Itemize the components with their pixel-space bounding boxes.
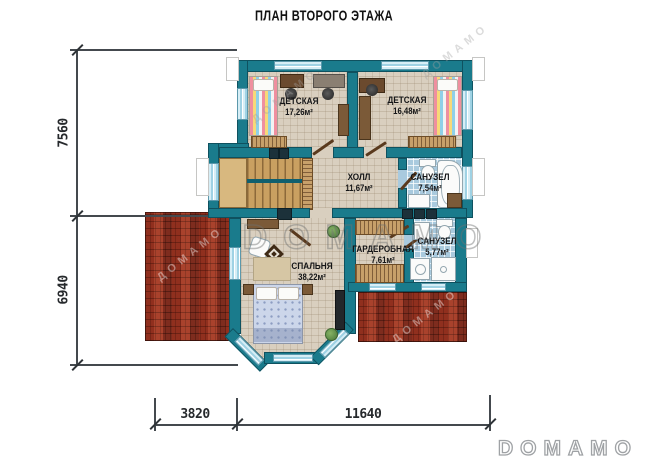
pilaster-top-left: [226, 57, 239, 81]
brand-logo: DOMAMO: [498, 437, 638, 461]
room-name: ХОЛЛ: [345, 172, 372, 183]
dimension-line-left: [76, 50, 78, 366]
room-area: 16,48м²: [388, 106, 427, 117]
dimension-value-6940: 6940: [57, 275, 72, 304]
room-area: 11,67м²: [345, 183, 372, 194]
window-bay-bottom: [273, 354, 313, 362]
window-right-kids2: [462, 90, 473, 130]
nightstand-right: [302, 284, 313, 295]
dimension-value-7560: 7560: [57, 118, 72, 147]
wall-bath1-north: [386, 147, 462, 158]
pillow: [256, 287, 277, 300]
room-name: САНУЗЕЛ: [411, 172, 450, 183]
washer-door: [415, 264, 426, 275]
sink-bath1: [408, 194, 430, 208]
room-label-bedroom: СПАЛЬНЯ 38,22м²: [291, 261, 332, 283]
wall-mid-east: [332, 208, 467, 218]
wall-hall-north: [333, 147, 364, 158]
dimension-line-bottom: [154, 424, 491, 426]
room-area: 17,26м²: [280, 107, 319, 118]
pillow: [278, 287, 299, 300]
room-label-hall: ХОЛЛ 11,67м²: [345, 172, 372, 194]
window-bath2: [421, 283, 446, 291]
vent-shaft: [269, 148, 279, 159]
pillow: [253, 79, 274, 91]
shower-drain: [440, 266, 447, 273]
room-name: СПАЛЬНЯ: [291, 261, 332, 272]
wall-bath1-west-b: [398, 188, 407, 208]
bed-kids2: [433, 76, 462, 136]
vent-shaft: [402, 209, 413, 219]
dresser-kids1: [251, 136, 287, 148]
pilaster-top-right: [472, 57, 485, 81]
dimension-ext-bottom: [70, 364, 238, 366]
vent-shaft: [426, 209, 437, 219]
rug: [253, 257, 291, 281]
closet-wardrobe-bottom: [355, 264, 404, 283]
tv-console: [335, 290, 345, 330]
pilaster-right: [472, 158, 485, 196]
hall-closet: [302, 158, 313, 210]
window-bedroom-left: [229, 247, 241, 280]
bed-master: [253, 284, 303, 344]
shower: [431, 257, 456, 281]
room-name: ДЕТСКАЯ: [388, 95, 427, 106]
room-label-kids2: ДЕТСКАЯ 16,48м²: [388, 95, 427, 117]
window-stairwell: [208, 163, 219, 201]
bed-throw: [254, 328, 302, 342]
cabinet-kids1: [338, 104, 349, 136]
stair-flight-lower: [247, 183, 304, 208]
window-left-kids1: [237, 88, 248, 120]
door-opening-bedroom: [310, 208, 332, 218]
floor-plan-page: ПЛАН ВТОРОГО ЭТАЖА: [0, 0, 648, 470]
laundry-basket: [447, 193, 462, 208]
dimension-value-3820: 3820: [180, 407, 209, 422]
watermark-center: DOMAMO: [243, 219, 498, 258]
chair-kids1-b: [322, 88, 334, 100]
wall-bath1-west-a: [398, 158, 407, 170]
wall-mid-west: [208, 208, 310, 218]
dimension-value-11640: 11640: [345, 407, 382, 422]
window-wardrobe: [369, 283, 396, 291]
room-label-bath1: САНУЗЕЛ 7,54м²: [411, 172, 450, 194]
dimension-ext-top: [70, 49, 237, 51]
stair-flight-upper: [247, 158, 304, 179]
pillow: [437, 79, 458, 91]
room-area: 7,54м²: [411, 183, 450, 194]
dresser-kids2: [408, 136, 456, 148]
dimension-ext-mid: [70, 215, 208, 217]
chair-kids2: [366, 84, 378, 96]
vent-shaft: [279, 148, 289, 159]
vent-shaft: [414, 209, 425, 219]
wall-kids1-south: [219, 147, 312, 158]
pilaster-left: [196, 158, 209, 196]
plant-icon: [325, 328, 338, 341]
cabinet-kids2: [359, 96, 371, 140]
nightstand-left: [243, 284, 254, 295]
room-area: 38,22м²: [291, 272, 332, 283]
stair-landing: [219, 158, 247, 208]
page-title: ПЛАН ВТОРОГО ЭТАЖА: [255, 8, 393, 25]
